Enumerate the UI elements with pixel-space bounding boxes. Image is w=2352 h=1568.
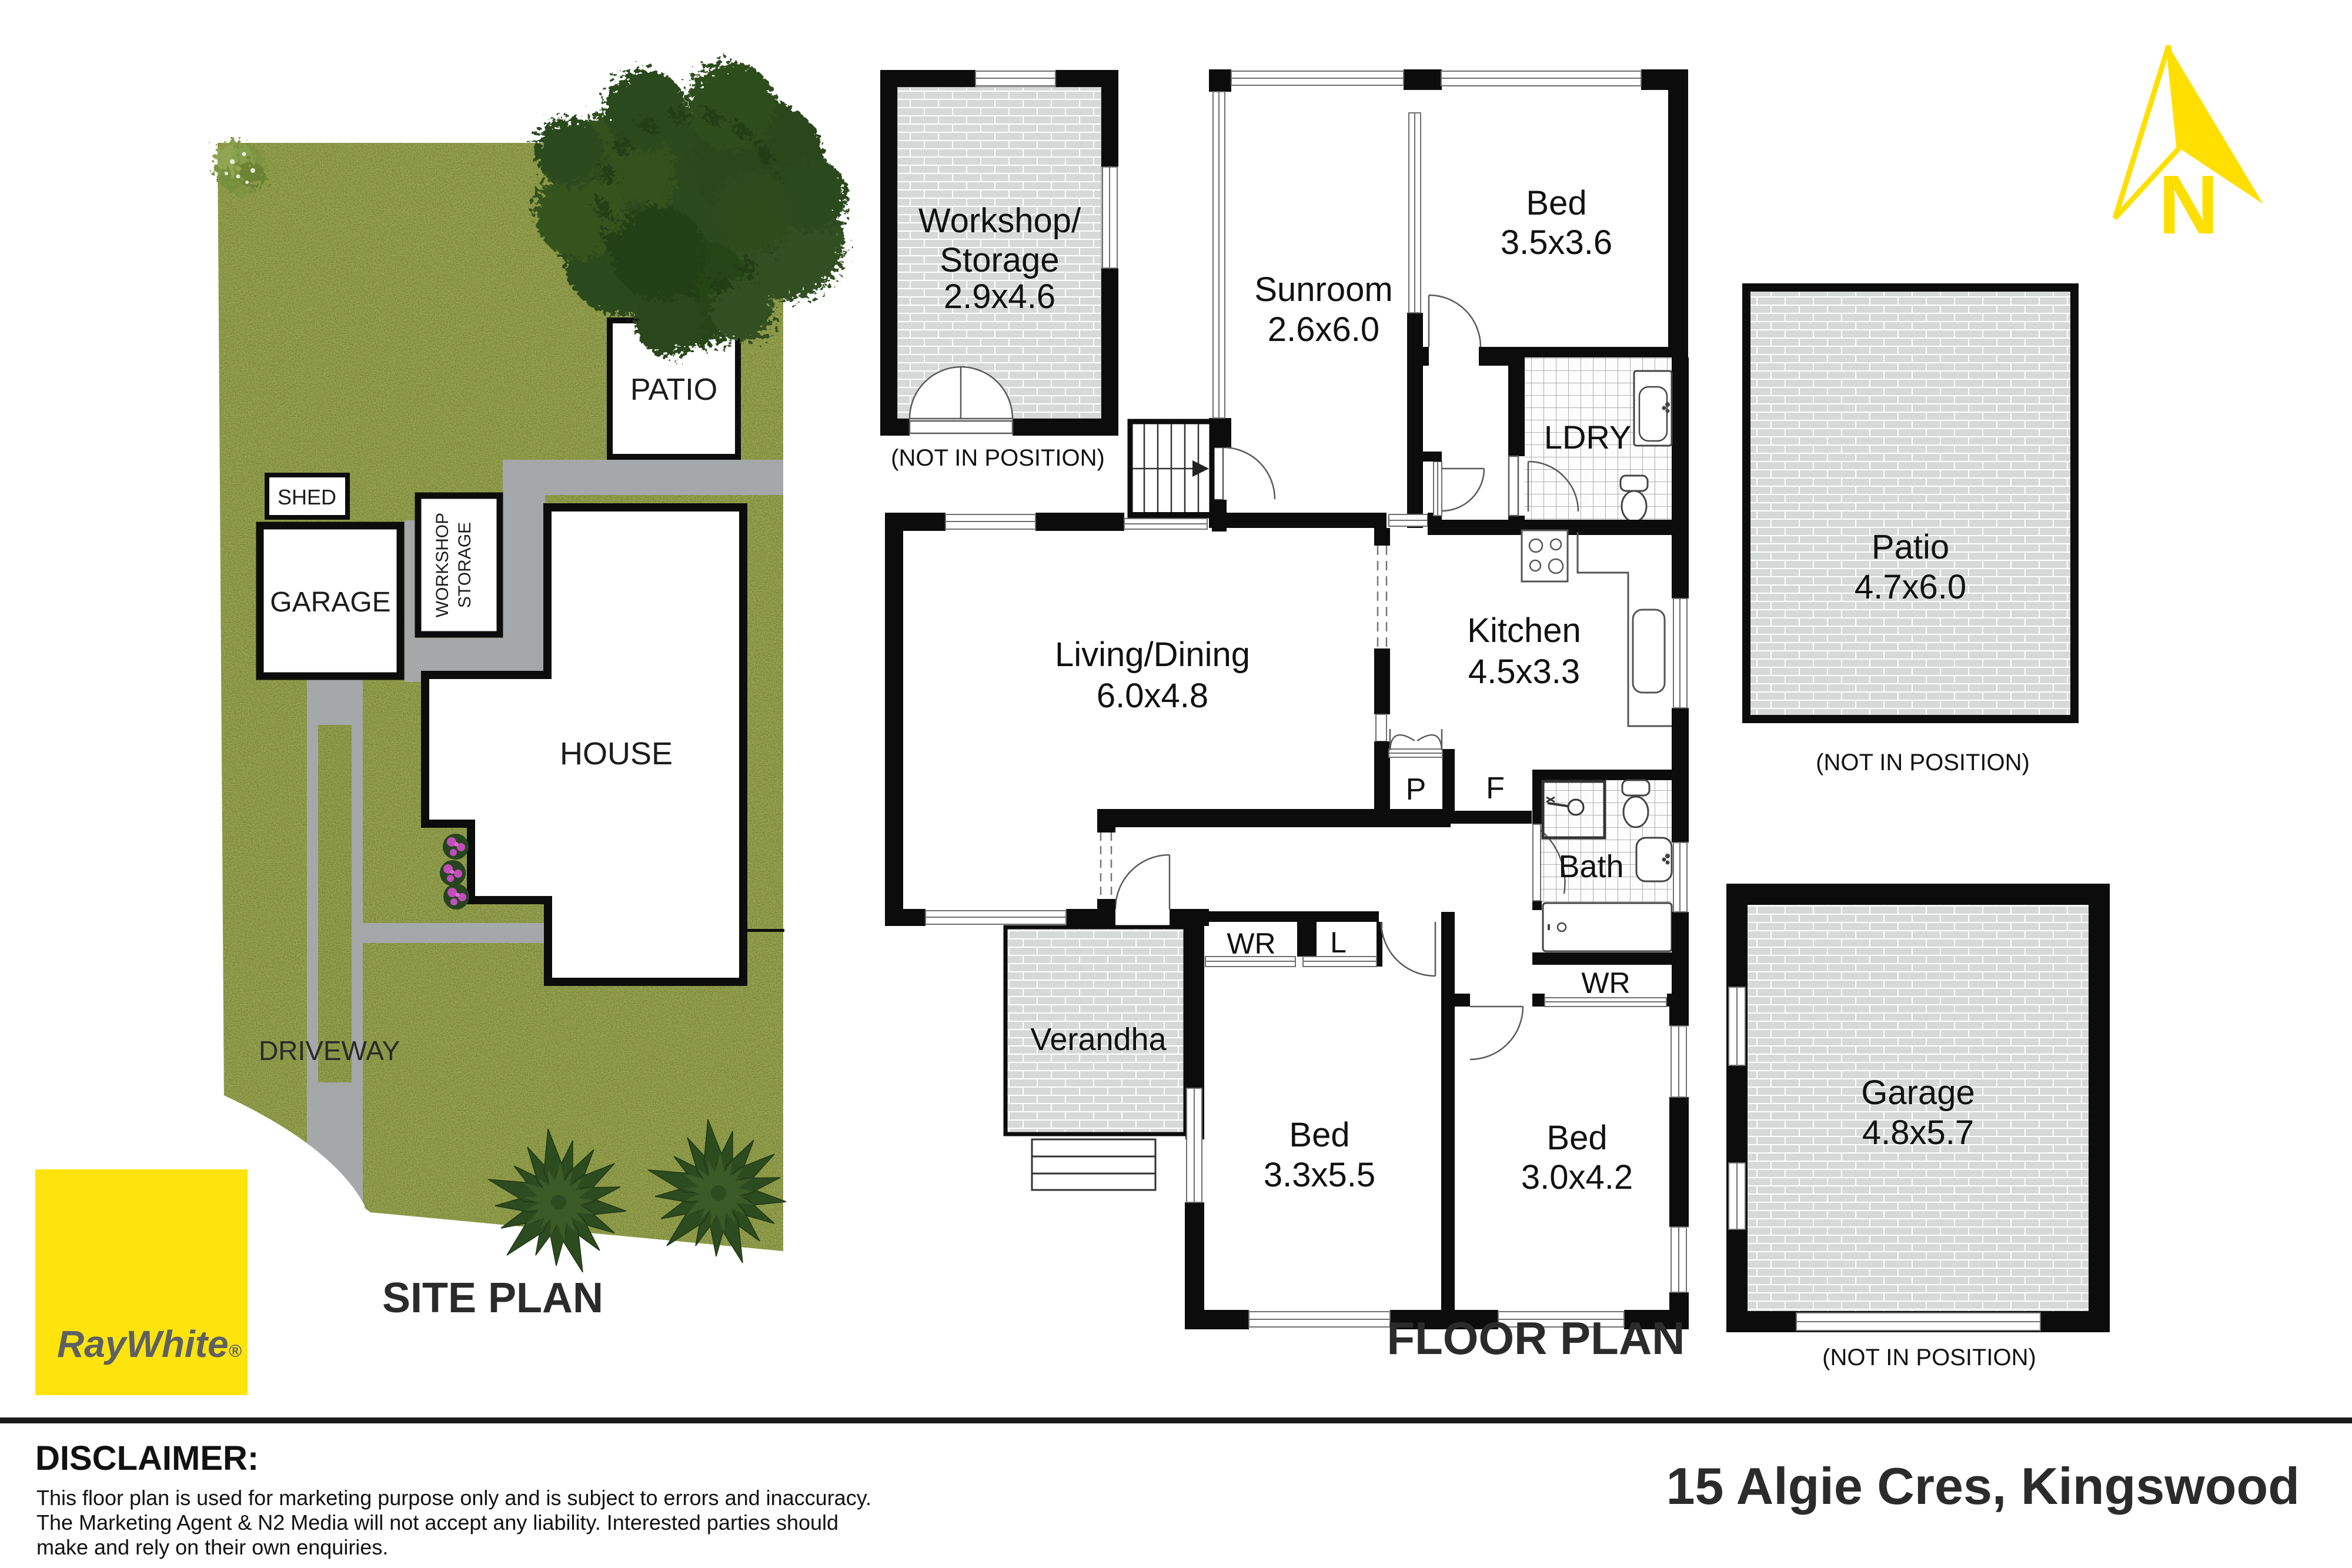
svg-text:4.5x3.3: 4.5x3.3 (1468, 653, 1580, 691)
svg-text:FLOOR PLAN: FLOOR PLAN (1387, 1312, 1685, 1364)
svg-text:DRIVEWAY: DRIVEWAY (259, 1035, 400, 1066)
svg-text:(NOT IN POSITION): (NOT IN POSITION) (1816, 750, 2030, 775)
svg-text:make and rely on their own enq: make and rely on their own enquiries. (36, 1535, 388, 1559)
svg-text:3.3x5.5: 3.3x5.5 (1264, 1156, 1375, 1194)
svg-text:Living/Dining: Living/Dining (1055, 636, 1250, 674)
svg-text:LDRY: LDRY (1544, 419, 1631, 456)
svg-text:2.9x4.6: 2.9x4.6 (944, 278, 1055, 316)
svg-text:Garage: Garage (1861, 1074, 1975, 1112)
svg-text:WR: WR (1581, 967, 1630, 999)
svg-text:Bed: Bed (1289, 1116, 1349, 1154)
svg-text:STORAGE: STORAGE (455, 522, 475, 608)
svg-text:SHED: SHED (278, 485, 336, 509)
svg-text:Patio: Patio (1872, 528, 1949, 566)
svg-text:Bed: Bed (1526, 184, 1586, 222)
svg-text:6.0x4.8: 6.0x4.8 (1097, 677, 1208, 715)
svg-text:(NOT IN POSITION): (NOT IN POSITION) (1822, 1345, 2036, 1370)
svg-text:Storage: Storage (940, 241, 1059, 279)
svg-text:2.6x6.0: 2.6x6.0 (1268, 310, 1379, 349)
svg-text:Workshop/: Workshop/ (918, 202, 1081, 240)
svg-text:4.7x6.0: 4.7x6.0 (1855, 568, 1966, 606)
svg-text:(NOT IN POSITION): (NOT IN POSITION) (891, 445, 1105, 471)
svg-text:GARAGE: GARAGE (270, 587, 390, 618)
svg-text:Sunroom: Sunroom (1254, 270, 1392, 309)
svg-text:3.5x3.6: 3.5x3.6 (1501, 223, 1612, 262)
svg-text:WR: WR (1227, 927, 1275, 960)
svg-text:This floor plan is used for ma: This floor plan is used for marketing pu… (36, 1486, 871, 1510)
svg-text:Kitchen: Kitchen (1467, 611, 1581, 650)
svg-text:RayWhite®: RayWhite® (57, 1323, 242, 1365)
svg-text:SITE PLAN: SITE PLAN (382, 1275, 603, 1322)
svg-text:DISCLAIMER:: DISCLAIMER: (35, 1439, 259, 1477)
svg-text:HOUSE: HOUSE (560, 736, 673, 771)
svg-text:Bed: Bed (1546, 1119, 1607, 1157)
svg-text:L: L (1330, 926, 1347, 959)
svg-text:F: F (1486, 771, 1505, 805)
svg-text:WORKSHOP: WORKSHOP (433, 513, 452, 617)
svg-text:3.0x4.2: 3.0x4.2 (1521, 1158, 1633, 1196)
svg-text:4.8x5.7: 4.8x5.7 (1862, 1114, 1974, 1152)
svg-text:Bath: Bath (1558, 849, 1623, 884)
svg-text:Verandha: Verandha (1030, 1022, 1167, 1057)
svg-text:The Marketing Agent & N2 Media: The Marketing Agent & N2 Media will not … (36, 1510, 838, 1534)
svg-text:P: P (1406, 773, 1426, 807)
svg-text:PATIO: PATIO (630, 373, 717, 407)
svg-text:N: N (2159, 158, 2219, 252)
svg-text:15 Algie Cres, Kingswood: 15 Algie Cres, Kingswood (1666, 1457, 2300, 1515)
